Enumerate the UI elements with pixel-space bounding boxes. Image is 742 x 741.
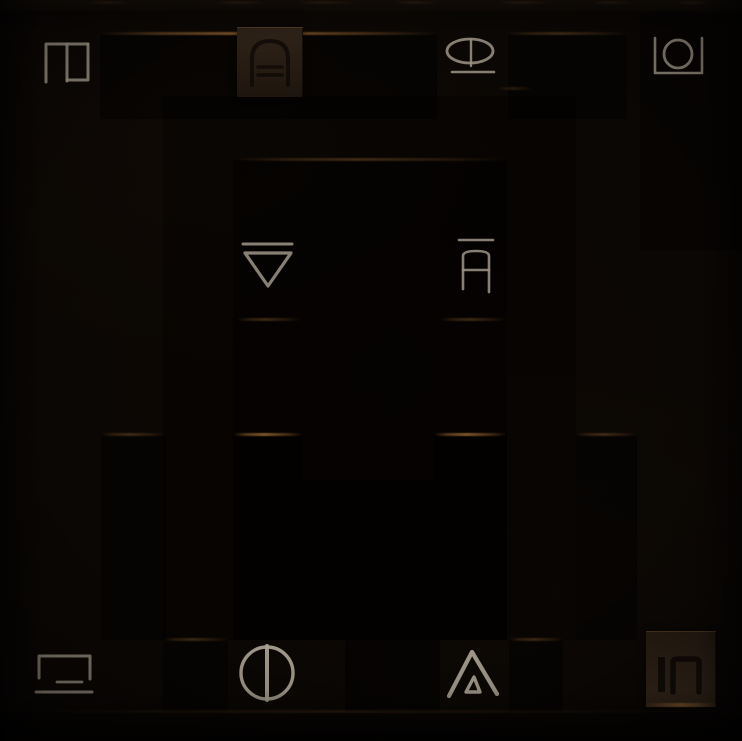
stone-edge-highlight [508,32,627,35]
stone-edge-highlight [233,433,303,436]
recessed-stone [509,640,563,712]
eye-with-underline-glyph[interactable] [444,34,496,76]
stone-edge-highlight [163,638,229,641]
recessed-column [576,435,637,640]
circle-vertical-line-glyph[interactable] [238,642,298,704]
stone-edge [298,1,356,4]
stone-edge-highlight [101,433,166,436]
floor-band [0,712,742,741]
open-box-over-lines-glyph[interactable] [34,648,94,696]
recessed-stone [345,640,440,712]
gate-with-inner-bar-glyph[interactable] [40,36,92,86]
arch-over-equals-glyph-icon [237,27,303,97]
stone-edge [498,1,552,4]
stone-edge-highlight [576,433,637,436]
stone-edge-highlight [509,638,564,641]
mountain-inner-triangle-glyph[interactable] [444,646,504,700]
recessed-column [434,435,507,640]
stone-edge-highlight [237,318,301,321]
stone-edge [592,1,634,4]
arch-glyph-tile[interactable] [237,27,303,97]
arch-crossbar-overline-glyph[interactable] [455,234,497,294]
stone-edge [676,1,712,4]
recessed-stone [163,640,228,712]
bar-and-gate-glyph-icon [646,631,716,707]
stone-edge-highlight [434,433,507,436]
stone-edge-highlight [40,710,700,713]
stone-edge-highlight [498,87,532,90]
nabla-with-overline-glyph[interactable] [240,238,296,290]
stone-edge-highlight [440,318,506,321]
stone-edge-highlight [233,158,507,161]
tile-lit-edge [646,703,716,707]
stone-edge [394,1,440,4]
recessed-column [233,435,303,640]
recessed-column [303,480,434,640]
circle-in-open-box-glyph[interactable] [650,32,706,78]
stone-edge [214,1,266,4]
bar-gate-glyph-tile[interactable] [646,631,716,707]
stone-edge [88,1,132,4]
recessed-column [101,435,166,640]
glyph-wall-scene [0,0,742,741]
